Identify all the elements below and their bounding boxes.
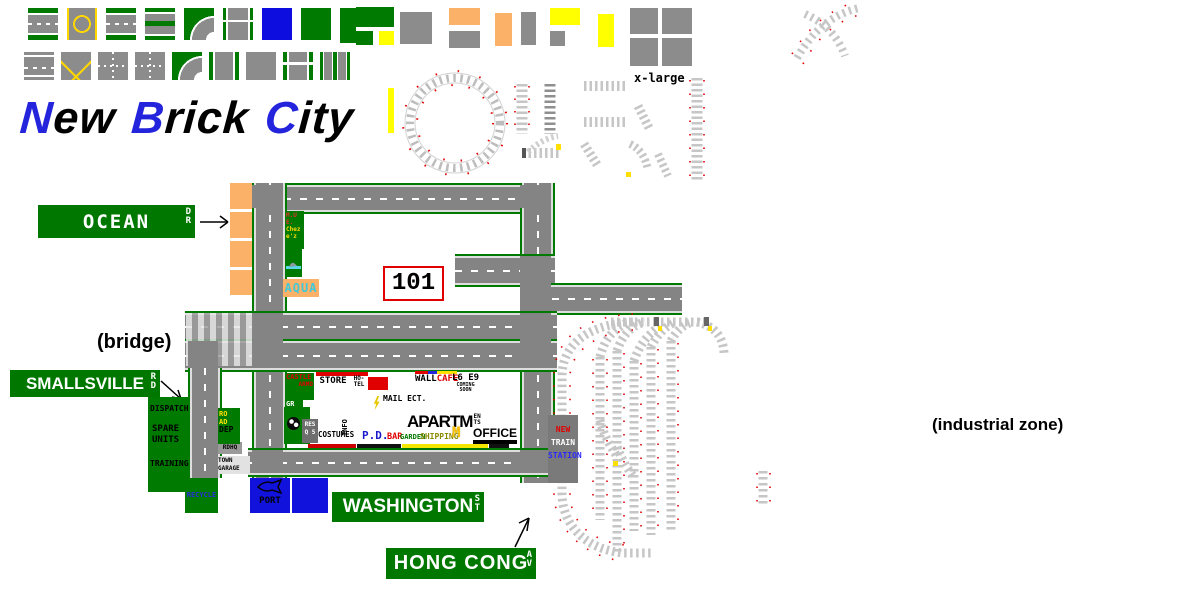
coming-soon-label: L6 E9 COMING SOON (452, 374, 479, 393)
garage-line: TOWN (218, 457, 250, 465)
palette-tile-yellow-flat (550, 8, 580, 25)
palette-tile-gray-flat (449, 31, 480, 48)
chez-line: Chez (286, 226, 303, 233)
palette-tile-park-plate (301, 8, 331, 40)
beach-tiles (230, 183, 252, 295)
mcdonalds-arches-icon: M (452, 425, 460, 441)
road-junction (520, 450, 551, 471)
hong-cong-arrow (505, 510, 533, 550)
palette-tile-road-straight-median (145, 8, 175, 40)
industrial-zone-label: (industrial zone) (932, 415, 1063, 435)
palette-tile-xlarge-plate (630, 8, 692, 66)
palette-tile-road-junction-small (98, 52, 128, 80)
palette-tile-yellow-small (379, 31, 394, 45)
road-junction (252, 185, 283, 208)
title-word: City (263, 92, 356, 143)
palette-tile-gray-large (400, 12, 432, 44)
road-junction (520, 185, 551, 208)
palette-tile-road-straight-h (28, 8, 58, 40)
palette-tile-road-cross-roundabout (67, 8, 97, 40)
port-label: PORT (250, 497, 290, 506)
palette-tile-yellow-tall (598, 14, 614, 47)
palette-tile-road-t-left (246, 52, 276, 80)
recycle-tile: RECYCLE (185, 478, 218, 513)
palette-tile-road-v-double (320, 52, 350, 80)
shopfront-bar (308, 444, 356, 448)
chez-line: M.U (286, 212, 303, 219)
info-label: INFO (341, 419, 349, 436)
garage-line: GARAGE (218, 465, 250, 473)
surf-tile (285, 249, 302, 277)
castle-tile: CASTLE ARMD (285, 373, 314, 400)
training-label: TRAINING (150, 460, 188, 468)
road-ocean-top (252, 183, 555, 214)
palette-tile-green-small (356, 31, 373, 45)
armd-label: ARMD (286, 381, 313, 388)
sign-suffix: DR (186, 208, 191, 226)
fish-icon (254, 479, 286, 494)
chez-line: e'z (286, 233, 303, 240)
street-sign-hong-cong: HONG CONG AV (386, 548, 536, 579)
road-junction (520, 313, 551, 366)
apartments-main: APARTM (407, 412, 472, 432)
office-label: OFFICE (473, 426, 517, 444)
red-shop-tile (368, 377, 388, 390)
road-dep-tile: RO AD DEP (218, 408, 240, 444)
spare-label: SPARE (152, 424, 179, 434)
station-line: TRAIN (548, 436, 578, 449)
road-smallsville (188, 368, 222, 478)
road-junction (252, 450, 283, 471)
palette-tile-road-straight-dash (106, 8, 136, 40)
train-station-tile: NEW TRAIN STATION (548, 415, 578, 483)
street-sign-smallsville: SMALLSVILLE RD (10, 370, 160, 397)
resq-line: RES (302, 421, 318, 429)
track-samples-corner (785, 0, 885, 70)
harbor-tile (292, 478, 328, 513)
wall-label: WALL (415, 374, 437, 384)
station-line: NEW (548, 423, 578, 436)
street-sign-ocean: OCEAN DR (38, 205, 195, 238)
sign-text: HONG CONG (394, 552, 529, 575)
port-tile: PORT (250, 478, 290, 513)
road-washington (248, 448, 557, 477)
palette-tile-yellow-sliver (388, 88, 394, 133)
palette-tile-road-curve (184, 8, 214, 40)
castle-label: CASTLE (286, 374, 313, 381)
hotel-line: TEL (350, 382, 368, 388)
sign-suffix: RD (151, 373, 156, 391)
new-brick-city-map: x-large NewBrickCity (0, 0, 1182, 589)
street-sign-washington: WASHINGTON ST (332, 492, 484, 522)
shopfront-bar (357, 444, 401, 448)
road-junction (252, 313, 283, 366)
palette-tile-road-t-junction (223, 8, 253, 40)
resq5-tile: RES Q 5 (302, 419, 318, 443)
highway-101-sign: 101 (383, 266, 444, 301)
shopfront-bar (489, 444, 509, 448)
chez-line: E. (286, 219, 303, 226)
shopfront-bar (402, 444, 488, 448)
sign-suffix: AV (527, 551, 532, 569)
palette-tile-gray-tall (521, 12, 536, 45)
palette-tile-water-plate (262, 8, 292, 40)
sign-text: OCEAN (83, 211, 150, 233)
palette-tile-orange-flat (449, 8, 480, 25)
bridge-label: (bridge) (97, 331, 171, 354)
title-word: Brick (130, 92, 251, 143)
wave-icon (286, 258, 301, 270)
palette-row-1 (28, 8, 365, 43)
road-junction (188, 341, 218, 368)
sign-suffix: ST (475, 495, 480, 513)
station-line: STATION (548, 449, 578, 462)
rail-yard (545, 295, 890, 573)
apartments-label: APARTM EN TS (407, 412, 481, 432)
palette-tile-road-curve2 (172, 52, 202, 80)
palette-tile-road-t-yellow (61, 52, 91, 80)
units-label: UNITS (152, 435, 179, 445)
page-title: NewBrickCity (18, 92, 372, 144)
police-label: P.D. (362, 429, 389, 442)
soccer-ball-icon (287, 417, 300, 430)
dispatch-label: DISPATCH (150, 404, 189, 413)
title-word: New (18, 92, 117, 143)
road-dep-line: RO (219, 410, 239, 418)
palette-tile-green-wide (356, 7, 394, 27)
coming-line: SOON (452, 388, 479, 393)
track-samples (398, 68, 718, 188)
sign-text: WASHINGTON (343, 496, 474, 518)
road-dep-line: DEP (219, 426, 239, 434)
palette-tile-park-plate-tall (340, 8, 356, 43)
aqua-tile: AQUA (283, 279, 319, 297)
palette-tile-road-straight-h2 (24, 52, 54, 80)
palette-tile-gray-small (550, 31, 565, 46)
store-label: STORE (316, 372, 350, 386)
palette-tile-orange-tall (495, 13, 512, 46)
ocean-arrow (198, 211, 234, 233)
lightning-bolt-icon (372, 396, 381, 410)
mail-label: MAIL ECT. (383, 394, 426, 403)
road-junction (520, 256, 551, 309)
palette-tile-road-straight-v (209, 52, 239, 80)
palette-tile-road-v-crosswalk (283, 52, 313, 80)
x-large-label: x-large (634, 71, 685, 85)
palette-row-2 (24, 52, 357, 80)
chez-sign-tile: M.U E. Chez e'z (285, 211, 304, 249)
sign-text: SMALLSVILLE (26, 374, 144, 394)
hotel-label: HO- TEL (350, 372, 368, 388)
town-garage-tile: TOWN GARAGE (218, 456, 250, 474)
palette-tile-road-cross-walks (135, 52, 165, 80)
resq-line: Q 5 (302, 429, 318, 437)
